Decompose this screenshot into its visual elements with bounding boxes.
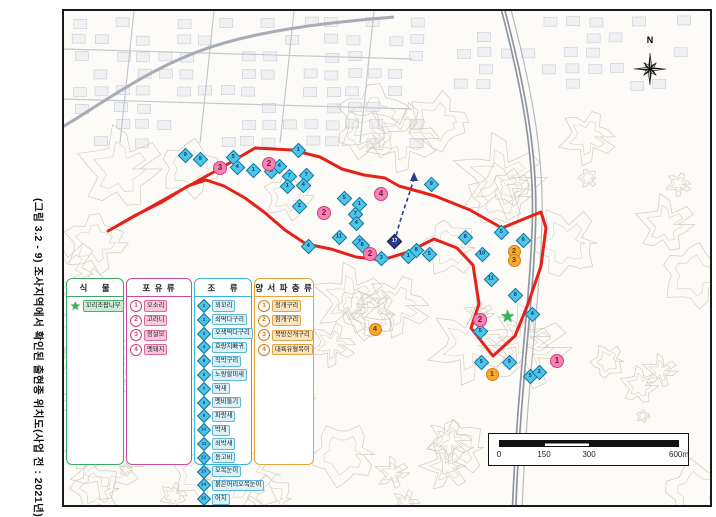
- legend-bird-item: 14붉은머리오목눈이: [198, 479, 249, 491]
- plant-marker-star[interactable]: ★: [500, 308, 515, 325]
- herp-circle-icon: 3: [258, 329, 270, 341]
- legend-bird-label: 멧비둘기: [212, 397, 241, 408]
- legend-bird-item: 4호랑지빠귀: [198, 341, 249, 353]
- mammal-marker-2[interactable]: 2: [473, 313, 487, 327]
- legend-herp-label: 대륙유혈목이: [272, 344, 313, 355]
- legend-bird-item: 5직박구리: [198, 355, 249, 367]
- legend-mammal-label: 청설모: [144, 330, 167, 341]
- legend-bird-label: 호랑지빠귀: [212, 342, 247, 353]
- bird-diamond-icon: 11: [197, 437, 211, 451]
- mammal-marker-3[interactable]: 3: [213, 161, 227, 175]
- legend-bird-label: 딱새: [212, 383, 230, 394]
- legend-herp: 양 서 파 충 류 1청개구리2참개구리3북방산개구리4대륙유혈목이: [254, 278, 314, 465]
- mammal-marker-2[interactable]: 2: [262, 157, 276, 171]
- legend-herp-items: 1청개구리2참개구리3북방산개구리4대륙유혈목이: [255, 297, 313, 356]
- herp-circle-icon: 2: [258, 315, 270, 327]
- legend-bird-label: 박새: [212, 425, 230, 436]
- legend-bird-item: 9파랑새: [198, 410, 249, 422]
- bird-diamond-icon: 13: [197, 464, 211, 478]
- legend-herp-item: 2참개구리: [258, 315, 311, 327]
- legend-bird-label: 쇠딱다구리: [212, 314, 247, 325]
- legend-mammal-items: 1오소리2고라니3청설모4멧돼지: [127, 297, 191, 356]
- legend-bird-label: 파랑새: [212, 411, 235, 422]
- legend-bird-label: 직박구리: [212, 356, 241, 367]
- legend-mammal-label: 고라니: [144, 315, 167, 326]
- bird-diamond-icon: 9: [197, 409, 211, 423]
- legend-plant: 식 물 ★꼬리조팝나무: [66, 278, 124, 465]
- legend-herp-item: 3북방산개구리: [258, 329, 311, 341]
- legend-herp-item: 4대륙유혈목이: [258, 344, 311, 356]
- bird-diamond-icon: 14: [197, 478, 211, 492]
- herp-circle-icon: 1: [258, 300, 270, 312]
- legend-bird: 조 류 1꾀꼬리2쇠딱다구리3오색딱다구리4호랑지빠귀5직박구리6노랑할미새7딱…: [194, 278, 252, 465]
- scale-label-150: 150: [537, 450, 550, 459]
- legend-mammal-item: 3청설모: [130, 329, 189, 341]
- bird-diamond-icon: 4: [197, 340, 211, 354]
- scale-label-300: 300: [582, 450, 595, 459]
- mammal-marker-4[interactable]: 4: [374, 187, 388, 201]
- legend-plant-label: 꼬리조팝나무: [83, 300, 124, 311]
- legend-bird-label: 오색딱다구리: [212, 328, 253, 339]
- page: { "figure_title": "(그림 3.2 - 9) 조사지역에서 확…: [0, 0, 716, 512]
- legend-herp-label: 참개구리: [272, 315, 301, 326]
- legend-bird-label: 꾀꼬리: [212, 300, 235, 311]
- legend-bird-items: 1꾀꼬리2쇠딱다구리3오색딱다구리4호랑지빠귀5직박구리6노랑할미새7딱새8멧비…: [195, 297, 251, 507]
- legend-bird-item: 8멧비둘기: [198, 397, 249, 409]
- legend-mammal: 포 유 류 1오소리2고라니3청설모4멧돼지: [126, 278, 192, 465]
- scale-bar-segments: [499, 440, 679, 447]
- map-frame[interactable]: 9854154771421517411183418598561011845595…: [62, 9, 712, 507]
- mammal-circle-icon: 2: [130, 315, 142, 327]
- svg-text:N: N: [647, 35, 654, 45]
- legend-herp-label: 청개구리: [272, 300, 301, 311]
- legend-bird-item: 15어치: [198, 493, 249, 505]
- legend-bird-label: 쇠박새: [212, 438, 235, 449]
- legend-bird-item: 3오색딱다구리: [198, 328, 249, 340]
- legend-bird-item: 6노랑할미새: [198, 369, 249, 381]
- figure-title: (그림 3.2 - 9) 조사지역에서 확인된 출현종 위치도(사업 전 : 2…: [31, 198, 46, 517]
- legend-bird-item: 13오목눈이: [198, 466, 249, 478]
- bird-diamond-icon: 3: [197, 327, 211, 341]
- legend-mammal-item: 4멧돼지: [130, 344, 189, 356]
- legend-bird-item: 12동고비: [198, 452, 249, 464]
- legend-mammal-item: 1오소리: [130, 300, 189, 312]
- legend-mammal-label: 멧돼지: [144, 344, 167, 355]
- mammal-marker-2[interactable]: 2: [363, 247, 377, 261]
- herp-marker-1[interactable]: 1: [486, 368, 499, 381]
- legend-bird-item: 2쇠딱다구리: [198, 314, 249, 326]
- north-arrow-icon: N: [628, 33, 672, 95]
- bird-diamond-icon: 1: [197, 299, 211, 313]
- bird-diamond-icon: 12: [197, 451, 211, 465]
- legend-bird-item: 1꾀꼬리: [198, 300, 249, 312]
- legend-plant-items: ★꼬리조팝나무: [67, 297, 123, 312]
- mammal-circle-icon: 4: [130, 344, 142, 356]
- bird-diamond-icon: 15: [197, 492, 211, 506]
- plant-star-icon: ★: [70, 300, 81, 312]
- mammal-marker-1[interactable]: 1: [550, 354, 564, 368]
- legend-bird-item: 10박새: [198, 424, 249, 436]
- legend-plant-header: 식 물: [67, 279, 123, 297]
- legend-mammal-header: 포 유 류: [127, 279, 191, 297]
- legend-bird-label: 동고비: [212, 452, 235, 463]
- legend-bird-item: 7딱새: [198, 383, 249, 395]
- legend-herp-header: 양 서 파 충 류: [255, 279, 313, 297]
- bird-diamond-icon: 5: [197, 354, 211, 368]
- legend-herp-item: 1청개구리: [258, 300, 311, 312]
- legend-mammal-item: 2고라니: [130, 315, 189, 327]
- bird-diamond-icon: 2: [197, 313, 211, 327]
- bird-diamond-icon: 16: [197, 506, 211, 507]
- mammal-marker-2[interactable]: 2: [317, 206, 331, 220]
- scale-label-600m: 600m: [669, 450, 689, 459]
- bird-diamond-icon: 6: [197, 368, 211, 382]
- legend-bird-label: 오목눈이: [212, 466, 241, 477]
- scale-label-0: 0: [497, 450, 501, 459]
- legend-bird-label: 어치: [212, 494, 230, 505]
- legend-bird-header: 조 류: [195, 279, 251, 297]
- bird-diamond-icon: 7: [197, 382, 211, 396]
- herp-marker-4[interactable]: 4: [369, 323, 382, 336]
- legend-plant-item: ★꼬리조팝나무: [70, 300, 121, 312]
- legend-mammal-label: 오소리: [144, 300, 167, 311]
- bird-diamond-icon: 10: [197, 423, 211, 437]
- legend-bird-label: 노랑할미새: [212, 369, 247, 380]
- legend-bird-label: 붉은머리오목눈이: [212, 480, 264, 491]
- legend-bird-item: 11쇠박새: [198, 438, 249, 450]
- mammal-circle-icon: 1: [130, 300, 142, 312]
- legend-herp-label: 북방산개구리: [272, 330, 313, 341]
- scale-bar: 0 150 300 600m: [488, 433, 689, 466]
- herp-circle-icon: 4: [258, 344, 270, 356]
- herp-marker-3[interactable]: 3: [508, 254, 521, 267]
- bird-diamond-icon: 8: [197, 396, 211, 410]
- mammal-circle-icon: 3: [130, 329, 142, 341]
